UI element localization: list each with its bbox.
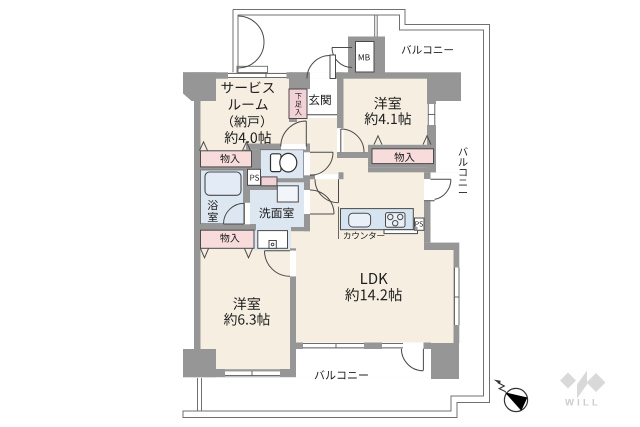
svg-text:WILL: WILL bbox=[565, 398, 601, 409]
